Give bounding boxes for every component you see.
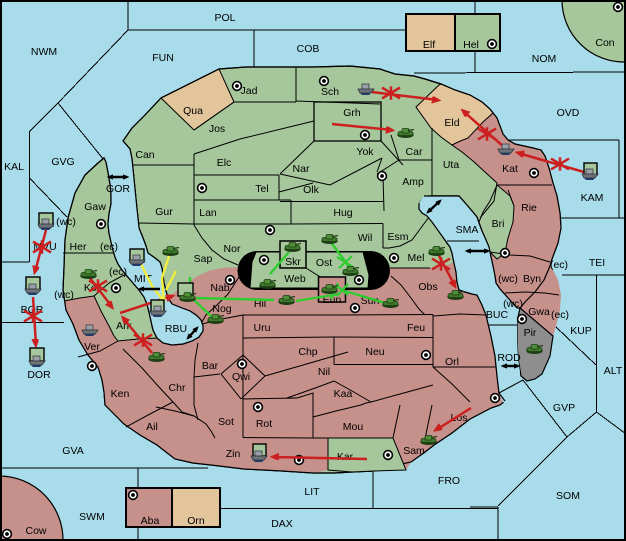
- svg-text:Pir: Pir: [524, 327, 537, 339]
- svg-text:Yok: Yok: [356, 146, 374, 158]
- svg-text:Aba: Aba: [141, 515, 160, 527]
- svg-text:ALT: ALT: [604, 365, 623, 377]
- svg-text:Skr: Skr: [285, 256, 301, 268]
- svg-text:(wc): (wc): [498, 273, 518, 285]
- svg-text:Qua: Qua: [183, 105, 203, 117]
- svg-text:Orn: Orn: [187, 515, 205, 527]
- svg-text:Hug: Hug: [333, 207, 352, 219]
- svg-text:ROD: ROD: [497, 352, 521, 364]
- svg-text:SMA: SMA: [456, 224, 479, 236]
- svg-text:(wc): (wc): [56, 216, 76, 228]
- svg-text:Lan: Lan: [199, 207, 217, 219]
- svg-text:Elc: Elc: [217, 157, 232, 169]
- svg-text:Ost: Ost: [316, 257, 332, 269]
- svg-text:OVD: OVD: [557, 107, 580, 119]
- svg-text:Nog: Nog: [212, 303, 231, 315]
- svg-text:RBU: RBU: [165, 323, 187, 335]
- svg-text:Nar: Nar: [293, 163, 310, 175]
- svg-text:FRO: FRO: [438, 475, 460, 487]
- svg-text:Wil: Wil: [358, 232, 373, 244]
- svg-text:Neu: Neu: [365, 346, 384, 358]
- svg-text:Mou: Mou: [343, 421, 364, 433]
- svg-text:Her: Her: [70, 241, 87, 253]
- svg-text:Jos: Jos: [209, 123, 225, 135]
- svg-text:SOM: SOM: [556, 490, 580, 502]
- svg-text:KUP: KUP: [570, 325, 592, 337]
- svg-text:Eld: Eld: [444, 117, 459, 129]
- svg-text:Orl: Orl: [445, 356, 459, 368]
- svg-text:Uta: Uta: [443, 159, 460, 171]
- svg-text:Sot: Sot: [218, 416, 234, 428]
- svg-text:Ail: Ail: [146, 421, 158, 433]
- svg-text:Chp: Chp: [298, 346, 317, 358]
- svg-text:GVP: GVP: [553, 402, 575, 414]
- svg-text:Esm: Esm: [388, 231, 409, 243]
- svg-text:Gwa: Gwa: [528, 306, 550, 318]
- svg-text:Sch: Sch: [321, 86, 339, 98]
- svg-text:BUC: BUC: [486, 309, 509, 321]
- svg-text:GVG: GVG: [51, 156, 74, 168]
- svg-text:KAL: KAL: [4, 161, 24, 173]
- svg-text:Kar: Kar: [337, 451, 354, 463]
- svg-text:FUN: FUN: [152, 52, 174, 64]
- svg-text:LIT: LIT: [304, 486, 320, 498]
- svg-text:Hel: Hel: [463, 39, 479, 51]
- svg-text:Jad: Jad: [241, 85, 258, 97]
- svg-text:(ec): (ec): [551, 309, 569, 321]
- svg-text:TEI: TEI: [589, 257, 605, 269]
- svg-text:KAM: KAM: [581, 192, 604, 204]
- svg-text:Rot: Rot: [256, 418, 272, 430]
- svg-text:Kat: Kat: [502, 163, 518, 175]
- svg-text:(wc): (wc): [54, 289, 74, 301]
- svg-text:SWM: SWM: [79, 511, 105, 523]
- svg-text:Bar: Bar: [202, 360, 219, 372]
- svg-text:(ec): (ec): [100, 241, 118, 253]
- svg-text:Chr: Chr: [169, 382, 186, 394]
- svg-text:Bri: Bri: [492, 218, 505, 230]
- svg-text:Uru: Uru: [254, 322, 271, 334]
- svg-text:Tel: Tel: [255, 183, 268, 195]
- svg-text:Nil: Nil: [318, 366, 330, 378]
- svg-text:Ken: Ken: [111, 388, 130, 400]
- svg-text:Amp: Amp: [402, 176, 424, 188]
- svg-text:Elf: Elf: [423, 39, 435, 51]
- svg-text:(ec): (ec): [109, 266, 127, 278]
- svg-text:Nor: Nor: [224, 243, 241, 255]
- svg-text:Gaw: Gaw: [84, 201, 106, 213]
- svg-text:Web: Web: [284, 273, 306, 285]
- svg-text:COB: COB: [297, 43, 320, 55]
- svg-text:Mel: Mel: [408, 252, 425, 264]
- svg-text:GVA: GVA: [62, 445, 83, 457]
- svg-text:Gur: Gur: [155, 206, 173, 218]
- svg-text:Zin: Zin: [226, 448, 241, 460]
- svg-text:Car: Car: [406, 146, 423, 158]
- svg-text:Sam: Sam: [403, 445, 425, 457]
- svg-text:(wc): (wc): [503, 298, 523, 310]
- svg-text:(ec): (ec): [550, 259, 568, 271]
- svg-text:GOR: GOR: [106, 183, 130, 195]
- svg-text:Rie: Rie: [521, 202, 537, 214]
- svg-text:Can: Can: [135, 149, 154, 161]
- svg-text:Kaa: Kaa: [334, 388, 353, 400]
- svg-text:Con: Con: [595, 37, 614, 49]
- svg-text:Feu: Feu: [407, 322, 425, 334]
- svg-text:Cow: Cow: [25, 525, 46, 537]
- svg-text:Qwi: Qwi: [232, 371, 250, 383]
- svg-text:DOR: DOR: [27, 369, 51, 381]
- svg-text:POL: POL: [214, 12, 235, 24]
- svg-text:Ver: Ver: [84, 341, 100, 353]
- svg-text:DAX: DAX: [271, 518, 293, 530]
- svg-text:Sap: Sap: [194, 253, 213, 265]
- svg-text:Olk: Olk: [303, 184, 320, 196]
- svg-text:Byn: Byn: [523, 273, 541, 285]
- svg-text:NOM: NOM: [532, 53, 557, 65]
- svg-text:Obs: Obs: [418, 281, 437, 293]
- svg-text:Grh: Grh: [343, 107, 361, 119]
- svg-text:NWM: NWM: [31, 46, 57, 58]
